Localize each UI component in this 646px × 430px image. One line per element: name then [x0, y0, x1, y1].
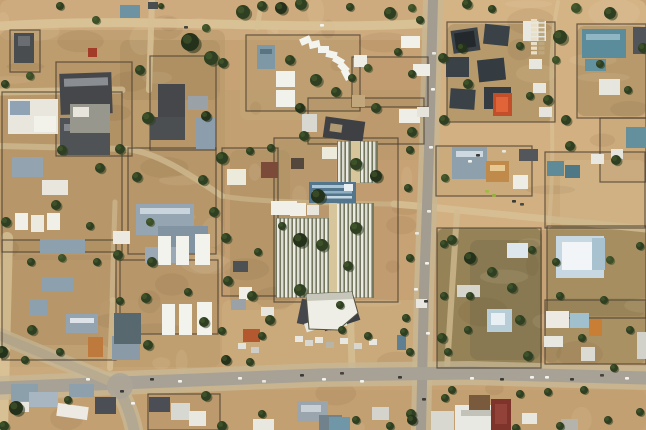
tree-highlight — [22, 357, 26, 361]
vehicle — [414, 288, 418, 291]
building — [29, 392, 58, 407]
satellite-scene-canvas — [0, 0, 646, 430]
tree-highlight — [185, 289, 189, 293]
market-roof-stripe — [325, 219, 327, 298]
building — [330, 123, 343, 133]
vehicle — [512, 200, 516, 203]
tree-highlight — [300, 132, 305, 137]
tree-highlight — [517, 43, 521, 47]
vehicle — [485, 190, 489, 193]
vehicle — [262, 380, 266, 383]
market-roof-stripe — [321, 219, 323, 298]
building — [34, 116, 56, 132]
tree-highlight — [445, 349, 449, 353]
tree-highlight — [210, 208, 215, 213]
vehicle — [520, 203, 524, 206]
tree-highlight — [524, 352, 529, 357]
tree-highlight — [59, 255, 63, 259]
building — [95, 397, 116, 414]
terrain-mottle — [152, 357, 170, 369]
tree-highlight — [385, 8, 391, 14]
tree-highlight — [183, 35, 192, 44]
tree-highlight — [295, 285, 301, 291]
tree-highlight — [371, 171, 377, 177]
tree-highlight — [148, 258, 153, 263]
terrain-mottle — [504, 0, 552, 8]
tree-highlight — [513, 425, 517, 429]
building — [581, 347, 595, 361]
tree-highlight — [311, 75, 317, 81]
tree-highlight — [202, 392, 207, 397]
market-roof-stripe — [357, 204, 359, 298]
tree-highlight — [87, 223, 91, 227]
vehicle — [427, 210, 431, 213]
building — [301, 405, 321, 412]
tree-highlight — [508, 284, 513, 289]
tree-highlight — [57, 3, 61, 7]
market-roof-stripe — [337, 204, 339, 298]
vehicle — [476, 154, 480, 157]
tree-highlight — [28, 259, 32, 263]
tree-highlight — [458, 44, 463, 49]
tree-highlight — [205, 52, 212, 59]
vehicle — [415, 232, 419, 235]
building — [626, 127, 646, 148]
tree-highlight — [217, 153, 223, 159]
tree-highlight — [199, 176, 204, 181]
building — [546, 311, 569, 328]
tree-highlight — [605, 417, 609, 421]
building — [149, 397, 170, 412]
tree-highlight — [405, 185, 409, 189]
tree-highlight — [407, 147, 411, 151]
building — [64, 77, 108, 87]
tree-highlight — [612, 156, 617, 161]
building — [340, 338, 348, 344]
building — [326, 342, 334, 348]
tree-highlight — [279, 223, 283, 227]
tree-highlight — [527, 93, 531, 97]
tree-highlight — [566, 142, 571, 147]
building — [189, 411, 206, 426]
building — [40, 239, 85, 253]
tree-highlight — [407, 255, 411, 259]
building — [276, 71, 295, 87]
tree-highlight — [544, 96, 549, 101]
vehicle — [470, 377, 474, 380]
building — [171, 403, 190, 420]
tree-highlight — [581, 387, 585, 391]
market-roof-stripe — [353, 204, 355, 298]
tree-highlight — [439, 54, 444, 59]
tree-highlight — [27, 73, 31, 77]
market-roof-stripe — [289, 219, 291, 298]
tree-highlight — [365, 333, 369, 337]
tree-highlight — [28, 326, 33, 331]
tree-highlight — [387, 423, 391, 427]
tree-highlight — [143, 113, 149, 119]
tree-highlight — [517, 391, 521, 395]
tree-highlight — [351, 223, 357, 229]
tree-highlight — [142, 294, 147, 299]
tree-highlight — [286, 56, 291, 61]
tree-highlight — [529, 247, 533, 251]
tree-highlight — [637, 243, 641, 247]
building — [496, 97, 508, 112]
building — [158, 236, 171, 265]
building — [565, 165, 580, 178]
vehicle — [492, 194, 496, 197]
stall — [539, 33, 545, 36]
tree-highlight — [116, 145, 121, 150]
vehicle — [426, 332, 430, 335]
building — [490, 165, 505, 171]
building — [257, 45, 275, 69]
tree-highlight — [219, 59, 224, 64]
building — [562, 242, 592, 270]
vehicle — [432, 52, 436, 55]
building — [329, 417, 350, 430]
satellite-image — [0, 0, 646, 430]
tree-highlight — [408, 416, 413, 421]
vehicle — [429, 146, 433, 149]
tree-highlight — [417, 17, 421, 21]
tree-highlight — [409, 5, 413, 9]
tree-highlight — [337, 302, 341, 306]
building — [113, 231, 130, 244]
tree-highlight — [403, 315, 407, 319]
building — [70, 318, 94, 323]
building — [477, 58, 506, 83]
tree-highlight — [637, 409, 641, 413]
tree-highlight — [605, 8, 611, 14]
market-roof-stripe — [317, 219, 319, 298]
building — [519, 149, 538, 161]
tree-highlight — [351, 159, 357, 165]
market-roof-stripe — [346, 142, 348, 183]
building — [42, 180, 68, 195]
stall — [539, 47, 545, 50]
tree-highlight — [332, 88, 337, 93]
tree-highlight — [449, 387, 453, 391]
tree-highlight — [611, 365, 615, 369]
building — [586, 34, 620, 40]
building — [302, 114, 317, 132]
stall — [531, 28, 537, 31]
vehicle — [184, 26, 188, 29]
building — [47, 213, 60, 230]
tree-highlight — [557, 423, 561, 427]
vehicle — [360, 380, 364, 383]
building — [637, 332, 646, 359]
tree-highlight — [136, 66, 141, 71]
building — [176, 236, 189, 265]
stall — [539, 28, 545, 31]
tree-highlight — [268, 145, 272, 149]
building — [69, 384, 94, 397]
tree-highlight — [144, 341, 149, 346]
building — [66, 314, 98, 333]
tree-highlight — [247, 148, 251, 152]
tree-highlight — [409, 71, 413, 75]
building — [88, 337, 103, 357]
building — [322, 147, 337, 159]
building — [162, 304, 175, 335]
vehicle — [625, 377, 629, 380]
tree-highlight — [237, 6, 244, 13]
building — [227, 169, 246, 185]
tree-highlight — [248, 292, 253, 297]
vehicle — [530, 376, 534, 379]
vehicle — [570, 378, 574, 381]
market-roof-stripe — [342, 142, 344, 183]
building — [539, 107, 552, 117]
market-roof-stripe — [309, 219, 311, 298]
market-roof-stripe — [313, 219, 315, 298]
building — [372, 407, 389, 420]
vehicle — [600, 374, 604, 377]
tree-highlight — [463, 0, 468, 5]
building — [513, 175, 528, 189]
tree-highlight — [448, 236, 453, 241]
tree-highlight — [553, 259, 557, 263]
vehicle — [340, 372, 344, 375]
tree-highlight — [347, 4, 351, 8]
building — [533, 83, 546, 93]
tree-highlight — [159, 4, 162, 7]
tree-highlight — [408, 128, 413, 133]
tree-highlight — [407, 349, 411, 353]
tree-highlight — [317, 240, 323, 246]
building — [120, 5, 140, 18]
building — [522, 413, 537, 424]
stall — [531, 19, 537, 22]
building — [233, 261, 248, 272]
vehicle — [431, 88, 435, 91]
building — [469, 395, 490, 410]
tree-highlight — [117, 298, 121, 302]
vehicle — [500, 378, 504, 381]
tree-highlight — [200, 318, 205, 323]
tree-highlight — [219, 328, 223, 332]
tree-highlight — [639, 44, 644, 49]
dirt-road — [0, 23, 433, 26]
building — [253, 419, 274, 430]
building — [10, 101, 30, 115]
building — [589, 319, 602, 336]
building — [31, 215, 44, 232]
tree-highlight — [94, 259, 98, 263]
building — [295, 336, 303, 342]
market-roof-stripe — [338, 142, 340, 183]
tree-highlight — [395, 49, 399, 53]
vehicle — [238, 377, 242, 380]
stall — [539, 19, 545, 22]
stall — [539, 37, 545, 40]
building — [507, 243, 528, 258]
tree-highlight — [96, 164, 101, 169]
tree-highlight — [65, 397, 69, 401]
tree-highlight — [259, 333, 263, 337]
tree-highlight — [114, 251, 119, 256]
building — [529, 59, 542, 69]
building — [260, 49, 272, 54]
vehicle — [131, 402, 135, 405]
tree-highlight — [0, 422, 5, 427]
tree-highlight — [467, 293, 471, 297]
market-roof-stripe — [365, 142, 367, 183]
building — [592, 238, 605, 270]
tree-highlight — [2, 218, 7, 223]
tree-highlight — [255, 249, 259, 253]
building — [42, 277, 73, 291]
building — [73, 107, 89, 117]
tree-highlight — [465, 253, 471, 259]
vehicle — [422, 398, 426, 401]
tree-highlight — [438, 334, 443, 339]
tree-highlight — [349, 75, 353, 79]
building — [305, 340, 313, 346]
tree-highlight — [441, 293, 445, 297]
vehicle — [120, 390, 124, 393]
stall — [531, 37, 537, 40]
tree-highlight — [553, 57, 557, 61]
vehicle — [502, 150, 506, 153]
tree-highlight — [259, 411, 263, 415]
building — [544, 336, 563, 347]
building — [591, 154, 604, 164]
tree-highlight — [296, 104, 301, 109]
building — [261, 307, 274, 316]
tree-highlight — [10, 402, 17, 409]
vehicle — [425, 262, 429, 265]
building — [231, 299, 246, 310]
market-roof-stripe — [345, 204, 347, 298]
tree-highlight — [202, 112, 207, 117]
stall — [531, 51, 537, 54]
market-roof-stripe — [365, 204, 367, 298]
building — [290, 203, 306, 216]
building — [399, 109, 420, 123]
tree-highlight — [625, 87, 629, 91]
market-roof-stripe — [349, 204, 351, 298]
tree-highlight — [572, 4, 577, 9]
tree-highlight — [442, 395, 446, 399]
building — [354, 55, 367, 67]
road-junction — [107, 373, 133, 399]
tree-highlight — [465, 327, 469, 331]
building — [570, 313, 589, 328]
stall — [539, 42, 545, 45]
building — [431, 411, 454, 430]
tree-highlight — [222, 356, 227, 361]
vehicle — [398, 376, 402, 379]
building — [483, 24, 510, 47]
tree-highlight — [372, 104, 377, 109]
market-roof-stripe — [293, 219, 295, 298]
tree-highlight — [222, 234, 227, 239]
tree-highlight — [339, 327, 343, 331]
stall — [531, 47, 537, 50]
tree-highlight — [247, 359, 251, 363]
tree-highlight — [442, 175, 446, 179]
stall — [531, 24, 537, 27]
tree-highlight — [258, 2, 263, 7]
building — [354, 343, 362, 349]
tree-highlight — [93, 17, 97, 21]
tree-highlight — [276, 3, 282, 9]
building — [114, 313, 141, 344]
vehicle — [320, 24, 324, 27]
building — [401, 36, 420, 48]
building — [582, 29, 626, 58]
vehicle — [545, 376, 549, 379]
building — [315, 337, 323, 343]
vehicle — [424, 300, 428, 303]
tree-highlight — [545, 389, 549, 393]
building — [291, 158, 304, 169]
tree-highlight — [58, 146, 63, 151]
tree-highlight — [133, 173, 138, 178]
market-blue-building-streak — [344, 184, 353, 191]
market-roof-stripe — [341, 204, 343, 298]
stall — [539, 24, 545, 27]
vehicle — [322, 378, 326, 381]
stall — [539, 51, 545, 54]
tree-highlight — [557, 293, 561, 297]
building — [195, 234, 210, 265]
market-roof-stripe — [305, 219, 307, 298]
tree-highlight — [353, 417, 357, 421]
tree-highlight — [579, 335, 583, 339]
building — [495, 404, 507, 424]
tree-highlight — [516, 316, 521, 321]
vehicle — [150, 378, 154, 381]
tree-highlight — [401, 329, 405, 333]
building — [29, 299, 47, 316]
tree-highlight — [218, 422, 223, 427]
tree-highlight — [627, 327, 631, 331]
market-roof-stripe — [361, 204, 363, 298]
tree-highlight — [464, 80, 469, 85]
vehicle — [86, 378, 90, 381]
building — [251, 347, 259, 353]
building — [417, 107, 429, 117]
building — [243, 329, 260, 342]
building — [12, 157, 43, 177]
tree-highlight — [203, 25, 207, 29]
building — [307, 205, 319, 215]
building — [188, 96, 208, 110]
stall — [531, 33, 537, 36]
building — [88, 48, 97, 57]
building — [261, 162, 278, 178]
tree-highlight — [554, 31, 561, 38]
tree-highlight — [607, 257, 611, 261]
building — [15, 213, 28, 230]
tree-highlight — [441, 241, 445, 245]
tree-highlight — [365, 65, 369, 69]
building — [238, 343, 246, 349]
tree-highlight — [344, 262, 349, 267]
building — [352, 95, 365, 107]
building — [276, 90, 295, 107]
building — [148, 2, 158, 9]
market-roof-stripe — [277, 219, 279, 298]
tree-highlight — [266, 316, 271, 321]
tree-highlight — [52, 201, 57, 206]
vehicle — [468, 160, 472, 163]
